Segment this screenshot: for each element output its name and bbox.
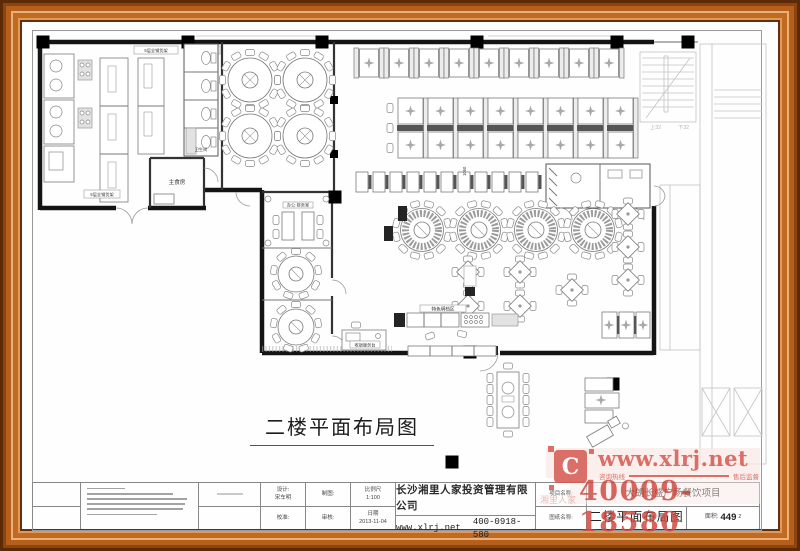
main-dining-hall: 特色明档区 收银服务台 — [342, 198, 650, 356]
title-block: 设计:宋车明 校准: 制图: 审核: 比例尺1:100 日期2013-11-04… — [32, 482, 760, 529]
review-label: 审核: — [322, 514, 335, 522]
notes-cell — [81, 483, 199, 529]
banquet-table — [487, 363, 529, 437]
area-sup: 2 — [738, 514, 741, 522]
title-block-empty-cell — [33, 483, 81, 529]
area-cell: 面积: 449 2 — [686, 507, 759, 530]
draft-label: 制图: — [322, 490, 335, 498]
company-website: www.xlrj.net — [396, 522, 461, 536]
scale-value: 1:100 — [366, 494, 380, 502]
project-cell: 项目名称: 大朗长盛广场餐饮项目 图纸名称: 二楼平面布局图 面积: 449 2 — [536, 483, 759, 529]
sheet-type-cell — [199, 483, 261, 529]
drawing-name: 二楼平面布局图 — [586, 507, 686, 530]
project-label: 项目名称: — [536, 490, 586, 498]
escalator-reception — [585, 378, 629, 448]
stair-down-label: 下32 — [678, 124, 689, 131]
design-label: 设计: — [277, 486, 290, 494]
label-main-food: 主食房 — [169, 178, 186, 186]
drawing-title: 二楼平面布局图 — [250, 411, 434, 446]
company-name: 长沙湘里人家投资管理有限公司 — [396, 483, 535, 515]
label-wc: 卫生间 — [195, 146, 208, 153]
designer-cell: 设计:宋车明 校准: — [261, 483, 306, 529]
framed-floor-plan: 上32 下32 — [0, 0, 800, 551]
drawing-label: 图纸名称: — [536, 514, 586, 522]
project-name: 大朗长盛广场餐饮项目 — [586, 483, 759, 506]
kitchen-area: 5层全钢货架 5层全钢货架 卫生间 主食房 — [44, 44, 220, 204]
date-label: 日期 — [367, 510, 378, 518]
draft-cell: 制图: 审核: — [306, 483, 351, 529]
stair-up-label: 上32 — [650, 123, 661, 131]
scale-date-cell: 比例尺1:100 日期2013-11-04 — [351, 483, 396, 529]
label-shelf: 5层全钢货架 — [144, 47, 167, 54]
floor-plan-drawing: 上32 下32 — [0, 0, 800, 551]
round-table-hall — [220, 50, 336, 167]
company-cell: 长沙湘里人家投资管理有限公司 www.xlrj.net 400-0918-580 — [396, 483, 536, 529]
area-value: 449 — [721, 511, 737, 525]
label-display: 特色明档区 — [432, 305, 455, 312]
check-label: 校准: — [277, 514, 290, 522]
label-cashier: 收银服务台 — [355, 341, 376, 348]
office-private-rooms: 办公·财务室 — [265, 196, 329, 353]
date-value: 2013-11-04 — [359, 518, 387, 526]
area-label: 面积: — [705, 513, 719, 522]
dim-label: 1060 — [462, 166, 467, 176]
scale-label: 比例尺 — [365, 486, 382, 494]
design-name: 宋车明 — [275, 494, 292, 502]
company-phone: 400-0918-580 — [473, 516, 535, 543]
label-shelf-2: 5层全钢货架 — [90, 191, 113, 198]
label-office: 办公·财务室 — [287, 202, 309, 209]
